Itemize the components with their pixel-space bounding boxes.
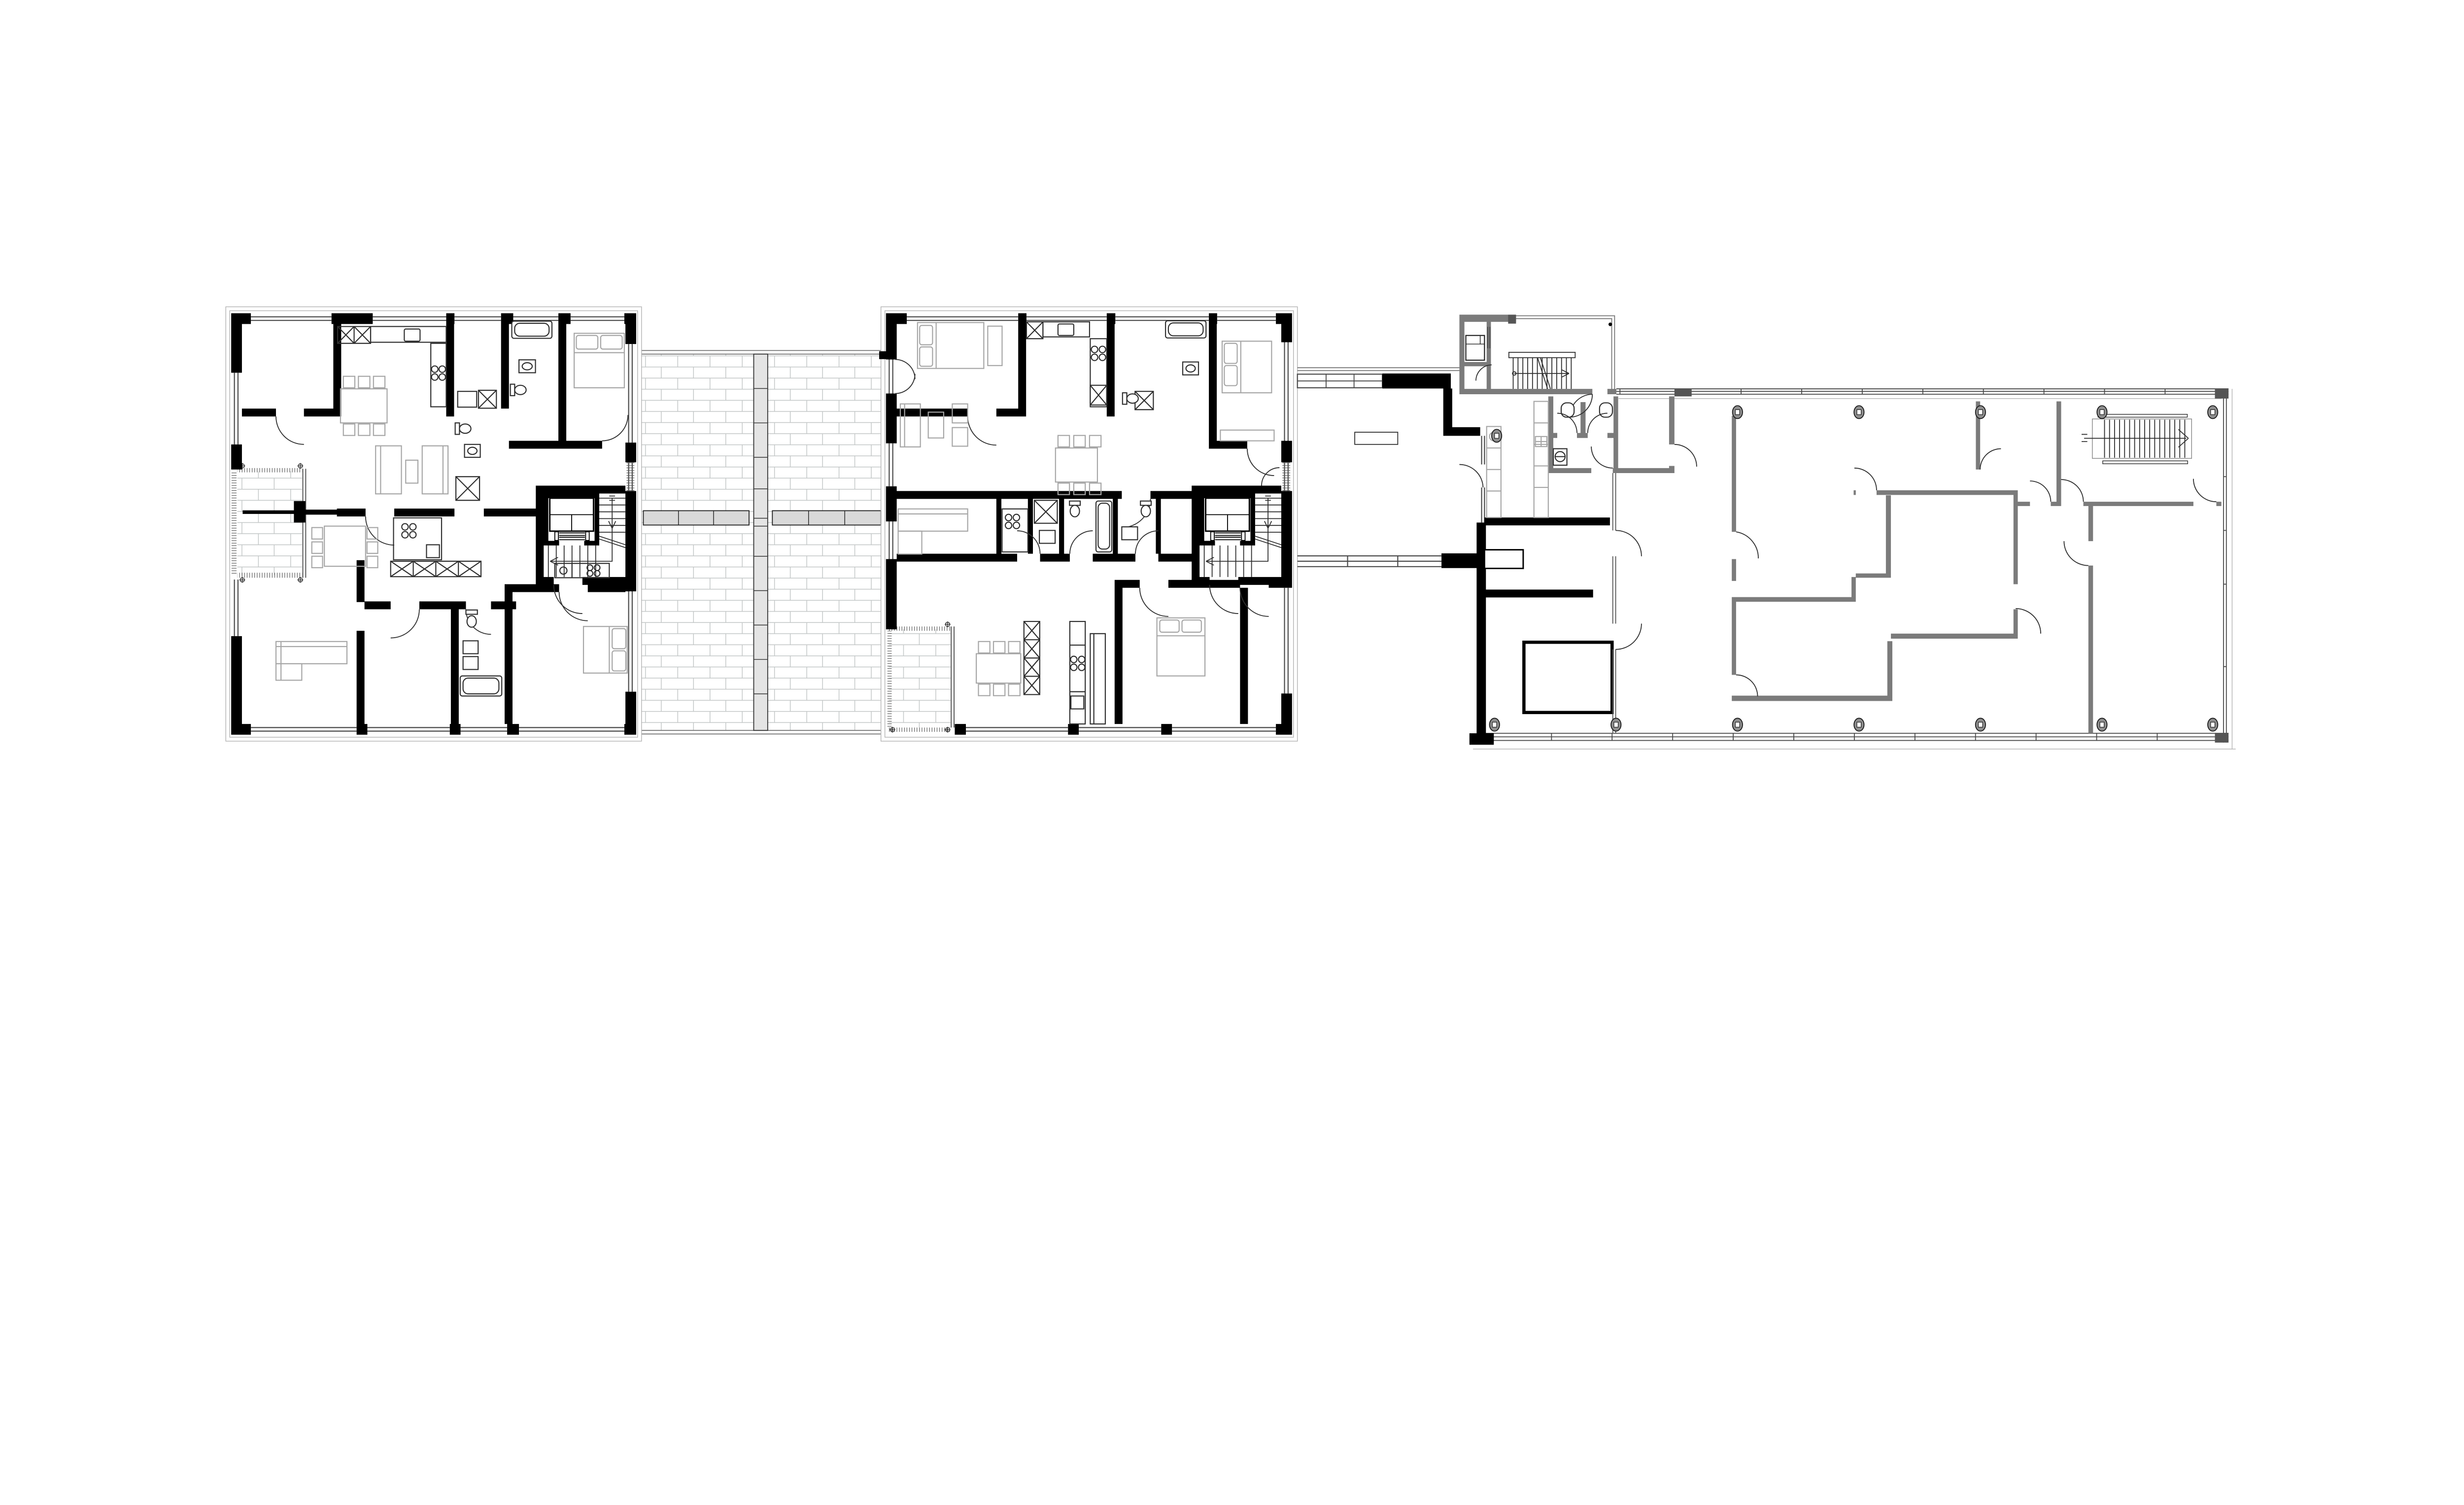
courtyard-concrete-path	[753, 354, 767, 731]
toilet	[1600, 403, 1612, 417]
washbasin	[519, 360, 535, 373]
loggia-railing	[237, 468, 302, 473]
bathtub	[460, 676, 502, 696]
column	[1492, 429, 1502, 442]
equipment	[1484, 550, 1523, 569]
bathtub	[1165, 321, 1206, 338]
column	[1733, 406, 1743, 418]
column	[1490, 718, 1500, 731]
toilet	[1561, 403, 1574, 417]
paper-background	[0, 0, 2464, 1095]
column	[2097, 406, 2107, 418]
column	[1611, 718, 1621, 731]
loggia-railing	[889, 626, 951, 631]
loggia-brick-floor	[889, 629, 951, 727]
shaded-window	[626, 462, 634, 491]
annex-pier	[1508, 315, 1516, 324]
column	[1854, 406, 1864, 418]
stair-rail	[1509, 352, 1575, 358]
column	[2097, 718, 2107, 731]
courtyard	[642, 350, 881, 734]
washbasin	[1553, 449, 1567, 465]
loggia-railing	[888, 631, 892, 727]
loggia-brick-floor	[237, 471, 302, 575]
stair-rail	[2103, 461, 2188, 464]
column	[2208, 406, 2218, 418]
building-a-loggia	[232, 463, 306, 583]
column	[1854, 718, 1864, 731]
roof-drain	[1608, 323, 1612, 326]
column	[1733, 718, 1743, 731]
shaded-window	[1282, 462, 1290, 491]
washbasin	[465, 445, 480, 457]
enclosed-room	[1524, 642, 1612, 713]
washbasin	[1183, 362, 1198, 375]
loggia-railing	[232, 471, 237, 575]
stair-rail	[2098, 414, 2187, 417]
loggia-railing	[237, 573, 302, 578]
floor-plan-page	[0, 0, 2464, 1095]
kitchen-sink	[1058, 324, 1074, 335]
column	[2208, 718, 2218, 731]
building-b-loggia	[888, 621, 954, 732]
floor-plan-drawing	[0, 0, 2464, 1095]
column	[1976, 406, 1985, 418]
toilet	[511, 384, 526, 396]
toilet	[455, 423, 471, 434]
toilet	[1123, 393, 1138, 404]
kitchen-sink	[404, 329, 420, 342]
planter	[1355, 432, 1398, 445]
toilet	[466, 610, 477, 627]
column	[1976, 718, 1985, 731]
bathtub	[512, 321, 552, 339]
loggia-railing	[889, 727, 951, 732]
vestibule	[1298, 374, 1382, 388]
